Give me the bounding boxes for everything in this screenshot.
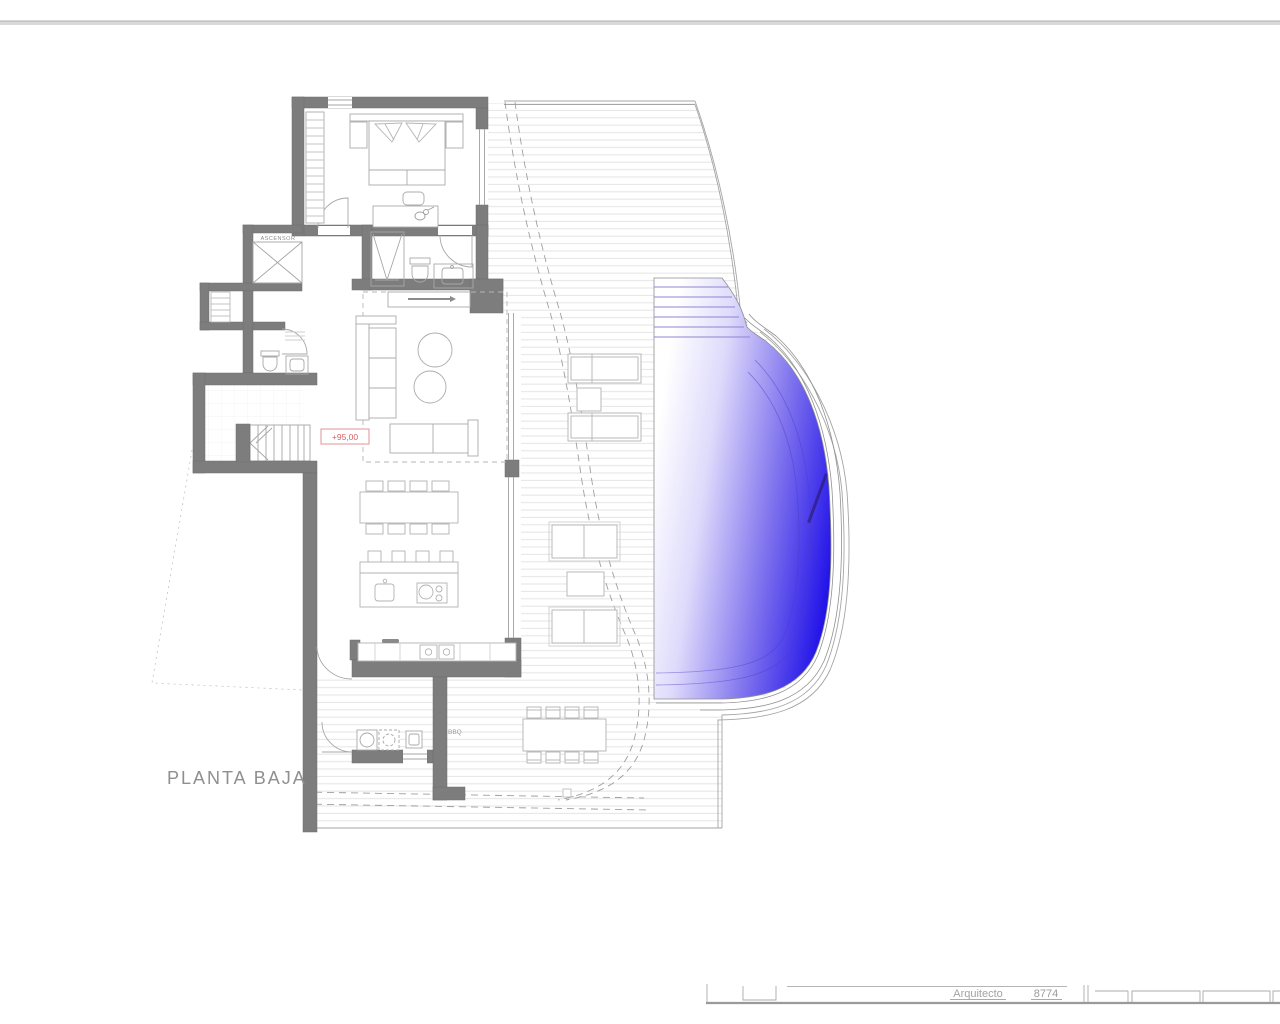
bbq-label: BBQ	[448, 729, 462, 736]
wall-entry-south	[193, 461, 317, 473]
level-marker: +95,00	[321, 429, 369, 444]
door-arc-bath	[440, 235, 472, 267]
counter-sink-faucet	[382, 639, 399, 643]
wall-entry-west	[193, 373, 205, 473]
plan-title: PLANTA BAJA	[167, 768, 307, 788]
sideboard	[388, 292, 470, 307]
page-frame	[0, 21, 1280, 25]
desk	[373, 206, 438, 227]
wall-living-east-segment	[505, 460, 519, 477]
glass-wall-living-east-lower	[509, 477, 514, 638]
wall-elevator-west	[243, 225, 253, 291]
nightstand	[350, 122, 367, 148]
wall-utility-south	[352, 750, 403, 763]
side-table	[577, 388, 601, 411]
wall-living-ne-corner	[470, 279, 503, 313]
door-arc-wc	[282, 329, 307, 354]
island-hob	[417, 583, 447, 603]
side-table	[567, 572, 604, 596]
main-staircase	[250, 425, 310, 461]
wall-bbq-column	[433, 677, 447, 800]
architect-label: Arquitecto	[953, 988, 1003, 1000]
floor-plan-canvas: ASCENSOR BBQ +95,00 PLANTA BAJA Arquitec…	[0, 0, 1280, 1024]
elevator-cross	[253, 242, 302, 283]
sun-lounger	[568, 354, 641, 383]
door-arc-hall	[317, 647, 352, 679]
glass-wall-living-east-upper	[509, 313, 514, 460]
level-marker-text: +95,00	[332, 432, 359, 442]
sun-lounger	[552, 610, 617, 643]
wardrobe	[306, 112, 324, 223]
annex-steps	[211, 292, 230, 322]
elevator	[253, 242, 302, 283]
dining-table	[360, 492, 458, 523]
wall-bedroom-east-upper	[476, 108, 488, 129]
bar-stools	[368, 551, 453, 562]
title-block: Arquitecto 8774	[706, 984, 1280, 1003]
wall-bbq-foot	[433, 787, 465, 800]
kitchen-counter	[358, 639, 516, 661]
bedroom-furniture	[306, 112, 463, 227]
title-block-small-box	[743, 986, 776, 1000]
bed-headboard	[350, 114, 463, 121]
kitchen-island	[360, 562, 458, 607]
top-frame-band	[0, 21, 1280, 25]
living-room	[356, 292, 507, 462]
wall-utility-stub	[427, 750, 433, 763]
sofa-two-seat	[390, 420, 478, 456]
wall-bedroom-west	[292, 97, 304, 236]
wc-toilet	[261, 351, 279, 371]
kitchen	[358, 551, 516, 661]
door-opening-bath	[438, 226, 472, 235]
coffee-table-round	[414, 371, 446, 403]
wall-kitchen-south	[352, 660, 521, 677]
dining-area	[360, 481, 458, 534]
desk-chair	[403, 192, 424, 205]
wall-elevator-south	[200, 283, 302, 291]
wall-bedroom-north	[292, 97, 488, 108]
wall-wc-north	[253, 322, 285, 330]
pool-water	[654, 278, 831, 699]
wall-stair-stub	[236, 424, 250, 462]
wall-wc-west	[243, 291, 253, 373]
architect-number: 8774	[1034, 988, 1058, 1000]
title-block-cell	[1203, 991, 1270, 1002]
window-bedroom-north	[328, 97, 352, 108]
sun-lounger	[568, 413, 641, 441]
deck-light-fixture	[563, 789, 571, 797]
nightstand	[446, 122, 463, 148]
wc-vanity	[286, 356, 308, 374]
wall-entry-north	[193, 373, 317, 385]
plot-dotted-line	[152, 450, 303, 690]
outdoor-table	[523, 719, 606, 751]
entry-hall	[205, 385, 310, 461]
sun-lounger	[552, 525, 617, 558]
door-opening-bedroom	[318, 226, 350, 235]
utility-room	[357, 730, 422, 750]
toilet	[410, 258, 430, 282]
plot-dotted-lines	[152, 450, 303, 690]
wall-annex-south	[200, 322, 247, 330]
elevator-label: ASCENSOR	[261, 236, 296, 242]
island-sink	[375, 584, 394, 601]
title-block-cell	[1132, 991, 1200, 1002]
pool	[654, 278, 842, 710]
window-bedroom-east	[480, 129, 485, 205]
sofa-l-shaped	[356, 316, 396, 420]
coffee-table-round	[418, 333, 452, 367]
door-opening-utility-south	[403, 750, 427, 763]
title-block-cell	[1273, 991, 1280, 1002]
